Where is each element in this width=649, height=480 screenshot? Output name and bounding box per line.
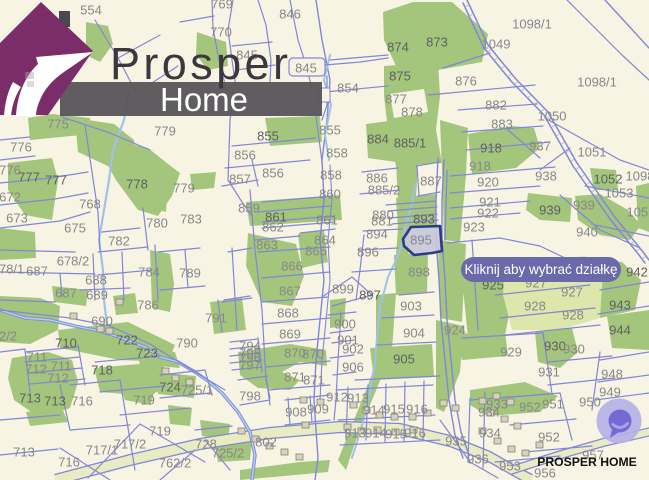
svg-text:923: 923 bbox=[463, 220, 485, 235]
svg-text:918: 918 bbox=[480, 141, 502, 156]
svg-text:722: 722 bbox=[116, 333, 138, 348]
svg-text:915: 915 bbox=[383, 402, 405, 417]
svg-text:948: 948 bbox=[601, 367, 623, 382]
svg-text:724: 724 bbox=[159, 380, 181, 395]
svg-text:905: 905 bbox=[393, 352, 415, 367]
svg-text:885/1: 885/1 bbox=[394, 136, 427, 151]
svg-text:906: 906 bbox=[342, 360, 364, 375]
svg-text:1050: 1050 bbox=[538, 109, 567, 124]
svg-text:930: 930 bbox=[563, 342, 585, 357]
svg-text:777: 777 bbox=[45, 173, 67, 188]
svg-text:862: 862 bbox=[262, 220, 284, 235]
svg-text:924: 924 bbox=[444, 323, 466, 338]
svg-text:725/1: 725/1 bbox=[181, 383, 214, 398]
svg-text:878: 878 bbox=[401, 105, 423, 120]
svg-text:887: 887 bbox=[420, 174, 442, 189]
svg-text:778: 778 bbox=[126, 177, 148, 192]
svg-text:783: 783 bbox=[180, 212, 202, 227]
svg-text:712: 712 bbox=[47, 371, 69, 386]
svg-text:784: 784 bbox=[138, 265, 160, 280]
svg-text:928: 928 bbox=[524, 299, 546, 314]
svg-text:PROSPER HOME: PROSPER HOME bbox=[537, 455, 637, 469]
svg-text:798: 798 bbox=[239, 389, 261, 404]
svg-text:689: 689 bbox=[86, 288, 108, 303]
svg-text:952: 952 bbox=[538, 430, 560, 445]
svg-text:913: 913 bbox=[344, 426, 366, 441]
svg-text:675: 675 bbox=[64, 221, 86, 236]
svg-text:934: 934 bbox=[479, 426, 501, 441]
svg-text:554: 554 bbox=[80, 3, 102, 18]
svg-text:952: 952 bbox=[519, 400, 541, 415]
svg-text:870: 870 bbox=[302, 347, 324, 362]
svg-text:949: 949 bbox=[599, 385, 621, 400]
svg-text:858: 858 bbox=[320, 168, 342, 183]
svg-text:885/2: 885/2 bbox=[368, 183, 401, 198]
svg-text:927: 927 bbox=[561, 285, 583, 300]
svg-text:861: 861 bbox=[316, 213, 338, 228]
svg-text:859: 859 bbox=[238, 201, 260, 216]
svg-text:780: 780 bbox=[146, 216, 168, 231]
svg-text:845: 845 bbox=[295, 61, 317, 76]
svg-text:782: 782 bbox=[108, 234, 130, 249]
svg-text:710: 710 bbox=[55, 336, 77, 351]
svg-text:860: 860 bbox=[319, 187, 341, 202]
svg-text:868: 868 bbox=[277, 306, 299, 321]
svg-text:712: 712 bbox=[25, 362, 47, 377]
svg-text:900: 900 bbox=[334, 317, 356, 332]
svg-text:779: 779 bbox=[154, 124, 176, 139]
svg-text:776: 776 bbox=[10, 140, 32, 155]
svg-text:790: 790 bbox=[176, 336, 198, 351]
svg-text:951: 951 bbox=[542, 397, 564, 412]
svg-text:717/2: 717/2 bbox=[114, 437, 147, 452]
svg-text:916: 916 bbox=[406, 402, 428, 417]
svg-text:713: 713 bbox=[44, 394, 66, 409]
svg-text:1098: 1098 bbox=[626, 169, 649, 184]
svg-text:802: 802 bbox=[255, 435, 277, 450]
svg-text:716: 716 bbox=[58, 455, 80, 470]
svg-text:678/1: 678/1 bbox=[0, 262, 24, 277]
svg-text:855: 855 bbox=[257, 129, 279, 144]
svg-text:719: 719 bbox=[133, 393, 155, 408]
svg-text:895: 895 bbox=[410, 233, 432, 248]
svg-text:690: 690 bbox=[91, 314, 113, 329]
svg-text:775: 775 bbox=[47, 117, 69, 132]
svg-text:914: 914 bbox=[365, 426, 387, 441]
svg-text:871: 871 bbox=[303, 373, 325, 388]
svg-text:898: 898 bbox=[408, 265, 430, 280]
svg-text:875: 875 bbox=[389, 69, 411, 84]
svg-text:725/2: 725/2 bbox=[212, 446, 245, 461]
svg-text:940: 940 bbox=[576, 225, 598, 240]
svg-text:856: 856 bbox=[234, 148, 256, 163]
svg-text:867: 867 bbox=[279, 284, 301, 299]
svg-text:942: 942 bbox=[626, 265, 648, 280]
svg-text:716: 716 bbox=[71, 394, 93, 409]
svg-text:1098/1: 1098/1 bbox=[512, 17, 552, 32]
svg-text:673: 673 bbox=[6, 211, 28, 226]
svg-text:1055: 1055 bbox=[627, 205, 649, 220]
svg-text:903: 903 bbox=[400, 299, 422, 314]
svg-text:869: 869 bbox=[279, 327, 301, 342]
svg-text:939: 939 bbox=[539, 203, 561, 218]
svg-text:908: 908 bbox=[285, 405, 307, 420]
svg-text:2/2: 2/2 bbox=[0, 329, 17, 344]
svg-text:918: 918 bbox=[469, 159, 491, 174]
svg-text:950: 950 bbox=[579, 395, 601, 410]
svg-text:928: 928 bbox=[562, 308, 584, 323]
svg-text:719: 719 bbox=[149, 424, 171, 439]
svg-text:762/2: 762/2 bbox=[159, 456, 192, 471]
svg-text:953: 953 bbox=[499, 459, 521, 474]
svg-text:855: 855 bbox=[319, 123, 341, 138]
svg-text:1053: 1053 bbox=[605, 186, 634, 201]
svg-text:856: 856 bbox=[262, 166, 284, 181]
svg-text:884: 884 bbox=[367, 132, 389, 147]
svg-text:894: 894 bbox=[366, 227, 388, 242]
svg-text:1051: 1051 bbox=[578, 145, 607, 160]
svg-text:678/2: 678/2 bbox=[57, 254, 90, 269]
svg-text:916: 916 bbox=[404, 426, 426, 441]
svg-text:672: 672 bbox=[0, 190, 21, 205]
svg-text:723: 723 bbox=[136, 346, 158, 361]
svg-text:931: 931 bbox=[538, 365, 560, 380]
svg-text:934: 934 bbox=[478, 405, 500, 420]
svg-text:846: 846 bbox=[279, 7, 301, 22]
svg-text:897: 897 bbox=[359, 288, 381, 303]
svg-text:922: 922 bbox=[477, 206, 499, 221]
svg-text:939: 939 bbox=[573, 198, 595, 213]
svg-text:883: 883 bbox=[491, 117, 513, 132]
svg-text:936: 936 bbox=[467, 452, 489, 467]
svg-text:769: 769 bbox=[211, 0, 233, 12]
svg-text:937: 937 bbox=[529, 139, 551, 154]
svg-text:912: 912 bbox=[326, 390, 348, 405]
svg-text:777: 777 bbox=[18, 170, 40, 185]
svg-text:Kliknij aby wybrać działkę: Kliknij aby wybrać działkę bbox=[464, 262, 617, 277]
svg-text:768: 768 bbox=[79, 197, 101, 212]
svg-text:938: 938 bbox=[535, 169, 557, 184]
svg-text:874: 874 bbox=[387, 40, 409, 55]
svg-text:914: 914 bbox=[363, 403, 385, 418]
svg-text:893: 893 bbox=[413, 212, 435, 227]
svg-text:904: 904 bbox=[403, 326, 425, 341]
svg-text:786: 786 bbox=[137, 298, 159, 313]
svg-text:876: 876 bbox=[455, 74, 477, 89]
svg-text:687: 687 bbox=[55, 286, 77, 301]
svg-text:896: 896 bbox=[357, 245, 379, 260]
svg-text:935: 935 bbox=[445, 434, 467, 449]
svg-text:854: 854 bbox=[337, 81, 359, 96]
svg-text:687: 687 bbox=[26, 264, 48, 279]
svg-text:791: 791 bbox=[205, 311, 227, 326]
svg-text:688: 688 bbox=[85, 273, 107, 288]
svg-text:857: 857 bbox=[229, 172, 251, 187]
svg-text:718: 718 bbox=[91, 363, 113, 378]
svg-text:943: 943 bbox=[609, 298, 631, 313]
svg-text:Home: Home bbox=[160, 81, 248, 118]
svg-text:882: 882 bbox=[485, 98, 507, 113]
svg-text:779: 779 bbox=[173, 181, 195, 196]
svg-text:1098/1: 1098/1 bbox=[577, 75, 617, 90]
svg-text:1049: 1049 bbox=[482, 37, 511, 52]
svg-text:920: 920 bbox=[477, 175, 499, 190]
svg-text:873: 873 bbox=[426, 35, 448, 50]
svg-text:899: 899 bbox=[332, 282, 354, 297]
svg-text:797: 797 bbox=[239, 358, 261, 373]
svg-text:713: 713 bbox=[13, 445, 35, 460]
svg-text:909: 909 bbox=[307, 402, 329, 417]
svg-text:789: 789 bbox=[179, 266, 201, 281]
svg-text:866: 866 bbox=[281, 259, 303, 274]
svg-text:944: 944 bbox=[609, 323, 631, 338]
svg-text:713: 713 bbox=[19, 391, 41, 406]
svg-text:902: 902 bbox=[342, 342, 364, 357]
svg-text:1052: 1052 bbox=[594, 172, 623, 187]
svg-text:863: 863 bbox=[256, 238, 278, 253]
svg-text:865: 865 bbox=[305, 244, 327, 259]
svg-text:929: 929 bbox=[500, 345, 522, 360]
svg-text:858: 858 bbox=[326, 146, 348, 161]
